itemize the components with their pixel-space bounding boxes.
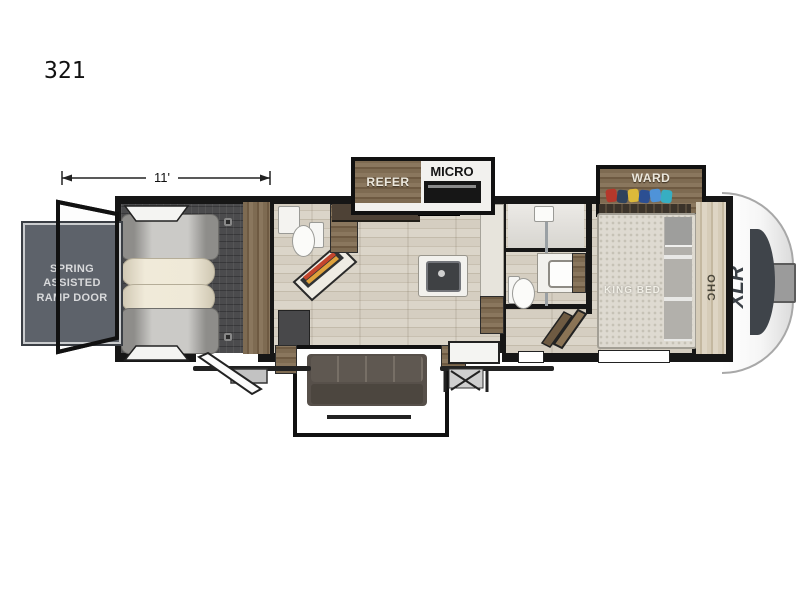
dimension-text: 11' (154, 170, 170, 185)
garage-vent-bottom (125, 346, 188, 360)
ramp-door-leaf-outline (58, 202, 117, 352)
dimension-arrow-left (62, 175, 72, 182)
dimension-arrow-right (260, 175, 270, 182)
dimension-label: 11' (146, 169, 178, 185)
garage-vent-top (125, 206, 188, 221)
floorplan-canvas: 321 XLR SPRING ASSISTED RAMP DOOR (0, 0, 800, 600)
overlay-shapes-layer (0, 0, 800, 600)
